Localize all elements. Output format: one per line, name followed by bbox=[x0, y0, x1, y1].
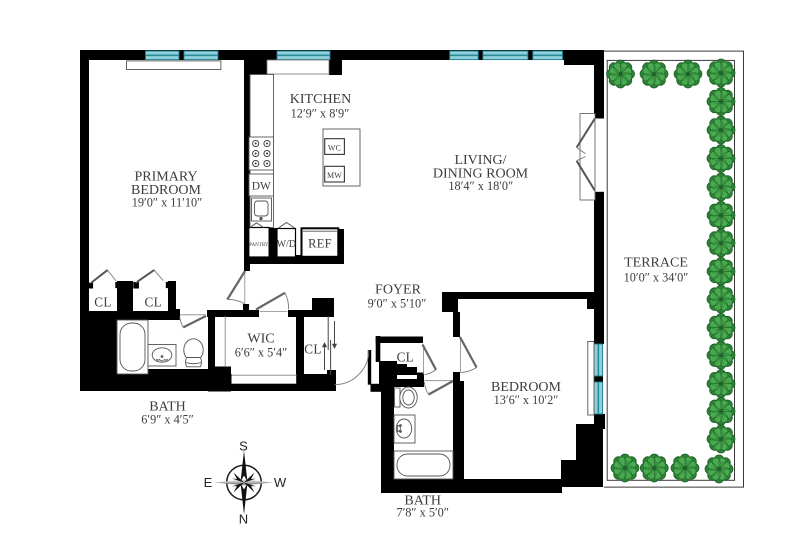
svg-text:W: W bbox=[274, 475, 287, 490]
svg-text:CL: CL bbox=[304, 342, 321, 357]
svg-text:12′9″ x 8′9″: 12′9″ x 8′9″ bbox=[291, 107, 350, 121]
svg-text:WIC: WIC bbox=[247, 332, 274, 347]
svg-text:S: S bbox=[239, 439, 248, 454]
svg-text:13′6″ x 10′2″: 13′6″ x 10′2″ bbox=[494, 393, 559, 407]
svg-text:WC: WC bbox=[328, 144, 341, 153]
svg-text:6′9″ x 4′5″: 6′9″ x 4′5″ bbox=[141, 413, 194, 427]
svg-text:KITCHEN: KITCHEN bbox=[290, 92, 351, 107]
svg-text:18′4″ x 18′0″: 18′4″ x 18′0″ bbox=[448, 179, 513, 193]
svg-text:N: N bbox=[239, 512, 248, 527]
svg-text:19′0″ x 11′10″: 19′0″ x 11′10″ bbox=[132, 195, 203, 209]
svg-text:7′8″ x 5′0″: 7′8″ x 5′0″ bbox=[396, 506, 449, 520]
svg-text:W/D: W/D bbox=[277, 239, 296, 250]
svg-text:MW: MW bbox=[327, 171, 342, 180]
svg-text:10′0″ x 34′0″: 10′0″ x 34′0″ bbox=[624, 271, 689, 285]
svg-text:REF: REF bbox=[308, 237, 332, 251]
svg-text:CL: CL bbox=[94, 295, 111, 310]
svg-text:CL: CL bbox=[144, 295, 161, 310]
svg-text:E: E bbox=[204, 475, 213, 490]
svg-text:6′6″ x 5′4″: 6′6″ x 5′4″ bbox=[235, 346, 288, 360]
svg-text:DW: DW bbox=[252, 181, 271, 193]
svg-text:9′0″ x 5′10″: 9′0″ x 5′10″ bbox=[368, 296, 427, 310]
svg-text:CL: CL bbox=[397, 350, 414, 365]
svg-text:TERRACE: TERRACE bbox=[624, 256, 688, 271]
svg-text:PANTRY: PANTRY bbox=[249, 243, 269, 248]
